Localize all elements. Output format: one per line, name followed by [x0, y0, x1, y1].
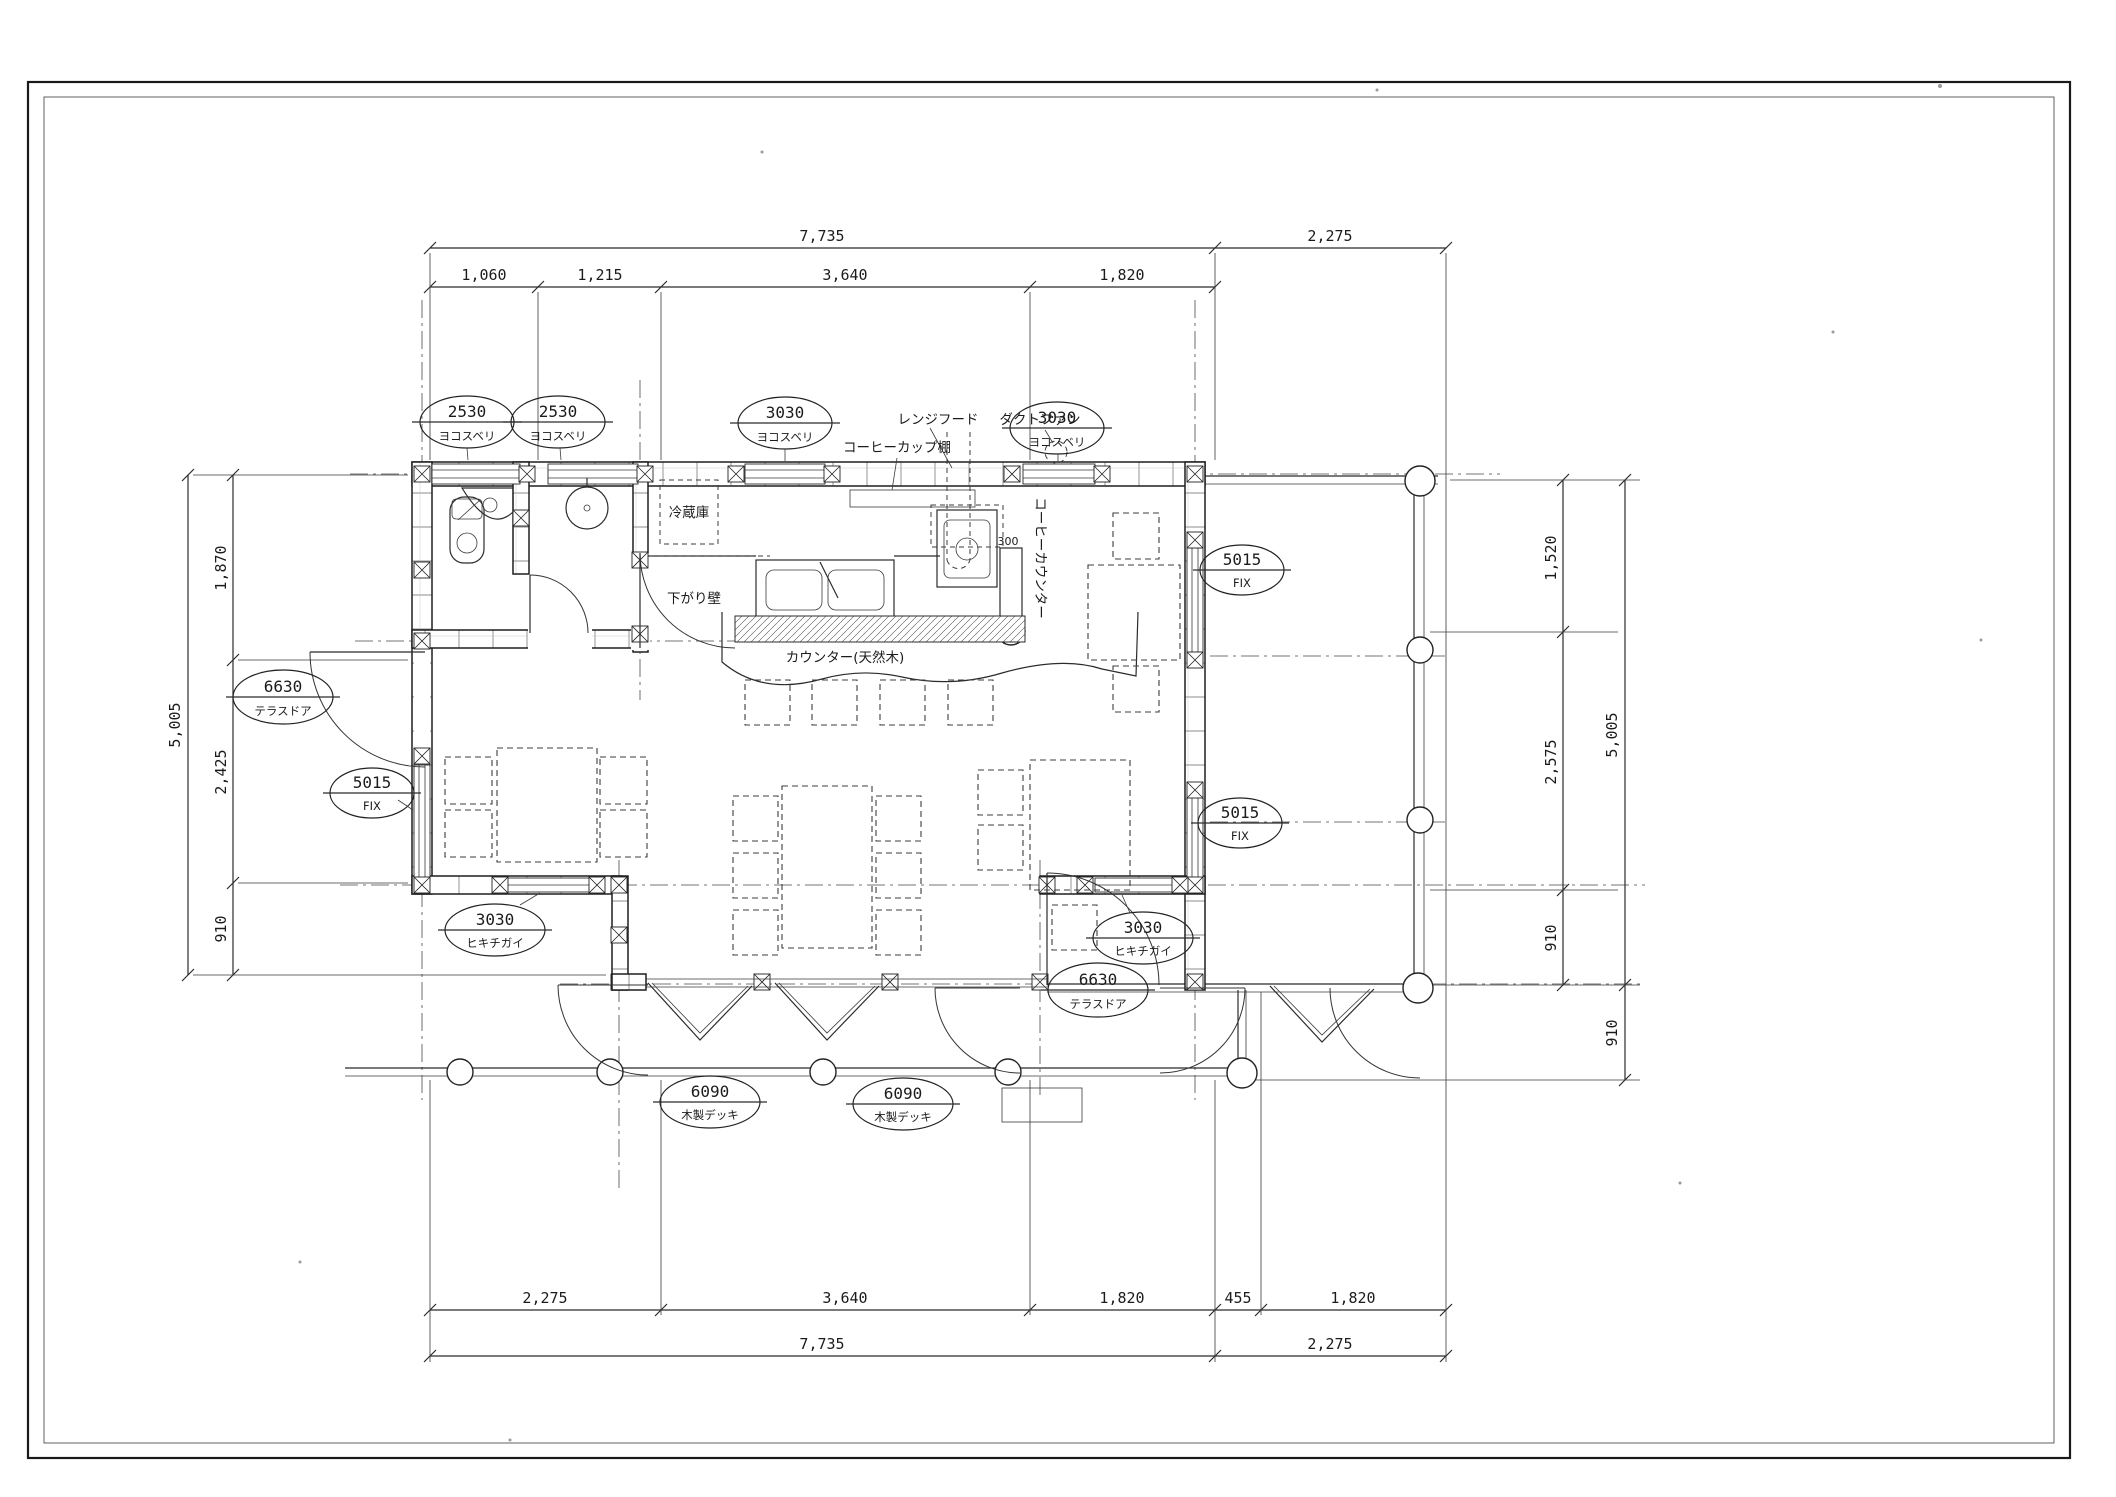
window-left-fix [414, 765, 430, 880]
dimension-right: 1,520 2,575 910 5,005 910 [1250, 474, 1640, 1086]
dim-bottom-seg5: 1,820 [1330, 1289, 1375, 1307]
label-duct-fan: ダクトファン [1000, 412, 1081, 428]
dim-right-seg1: 1,520 [1542, 535, 1560, 580]
callouts: 2530 ヨコスベリ 2530 ヨコスベリ 3030 ヨコスベリ 3030 ヨコ… [226, 396, 1291, 1130]
window-bottom-sliding-left [500, 878, 592, 892]
label-counter: カウンター(天然木) [786, 649, 905, 666]
svg-text:5015: 5015 [353, 773, 392, 792]
dim-top-overall: 7,735 [799, 227, 844, 245]
dimension-left: 5,005 1,870 2,425 910 [166, 469, 606, 981]
svg-text:6630: 6630 [264, 677, 303, 696]
kitchen-sink [756, 560, 894, 618]
dimension-bottom: 2,275 3,640 1,820 455 1,820 7,735 2,275 [424, 992, 1452, 1362]
window-right-fix-lower [1187, 795, 1203, 878]
label-coffee-cup-shelf: コーヒーカップ棚 [843, 440, 951, 456]
window-side-table [1088, 513, 1180, 712]
scan-noise [299, 84, 1983, 1442]
svg-text:5015: 5015 [1221, 803, 1260, 822]
svg-text:テラスドア: テラスドア [254, 704, 311, 718]
svg-text:テラスドア: テラスドア [1069, 997, 1126, 1011]
deck-step [1002, 1088, 1082, 1122]
callout-size: 2530 [448, 402, 487, 421]
dining-set-center [733, 786, 921, 955]
svg-text:ヒキチガイ: ヒキチガイ [466, 936, 524, 950]
dim-top-seg3: 3,640 [822, 266, 867, 284]
svg-text:6090: 6090 [691, 1082, 730, 1101]
callout-deck-left: 6090 木製デッキ [653, 1076, 767, 1128]
callout-type: ヨコスベリ [439, 429, 496, 443]
svg-text:3030: 3030 [476, 910, 515, 929]
label-dropped-wall: 下がり壁 [667, 591, 721, 607]
dim-top-seg2: 1,215 [577, 266, 622, 284]
label-refrigerator: 冷蔵庫 [669, 505, 710, 521]
callout-window-top-4: 3030 ヨコスベリ [1002, 402, 1112, 462]
dim-left-seg3: 910 [212, 915, 230, 942]
dim-bottom-seg3: 1,820 [1099, 1289, 1144, 1307]
svg-text:FIX: FIX [363, 799, 381, 813]
svg-text:5015: 5015 [1223, 550, 1262, 569]
corner-hand-basin [458, 488, 513, 520]
svg-text:ヨコスベリ: ヨコスベリ [1029, 435, 1086, 449]
dim-bottom-seg1: 2,275 [522, 1289, 567, 1307]
walls [412, 462, 1205, 990]
callout-deck-right: 6090 木製デッキ [846, 1078, 960, 1130]
svg-text:ヒキチガイ: ヒキチガイ [1114, 944, 1172, 958]
svg-text:FIX: FIX [1233, 576, 1251, 590]
dim-left-seg1: 1,870 [212, 545, 230, 590]
dining-set-right [978, 760, 1130, 950]
svg-text:木製デッキ: 木製デッキ [874, 1110, 932, 1124]
coffee-cup-shelf [850, 490, 975, 507]
dim-top-overall-right: 2,275 [1307, 227, 1352, 245]
dim-top-seg4: 1,820 [1099, 266, 1144, 284]
svg-text:3030: 3030 [766, 403, 805, 422]
toilet [450, 497, 484, 563]
svg-text:ヨコスベリ: ヨコスベリ [530, 429, 587, 443]
bar-counter [722, 612, 1138, 685]
wall-joints [414, 466, 1203, 990]
window-top-4 [1023, 464, 1095, 484]
bar-stools [745, 680, 993, 725]
callout-sliding-left: 3030 ヒキチガイ [438, 893, 552, 956]
window-top-1 [432, 464, 520, 484]
window-top-2 [548, 464, 638, 484]
dim-left-overall: 5,005 [166, 702, 184, 747]
deck-posts [447, 466, 1435, 1088]
dim-bottom-seg4: 455 [1224, 1289, 1251, 1307]
dim-bottom-seg2: 3,640 [822, 1289, 867, 1307]
dim-right-seg3: 910 [1542, 924, 1560, 951]
svg-text:木製デッキ: 木製デッキ [681, 1108, 739, 1122]
callout-terrace-door-left: 6630 テラスドア [226, 670, 340, 724]
floor-plan-drawing: 7,735 2,275 1,060 1,215 3,640 1,820 2,27… [0, 0, 2116, 1497]
dim-left-seg2: 2,425 [212, 749, 230, 794]
svg-text:3030: 3030 [1124, 918, 1163, 937]
callout-fix-right-upper: 5015 FIX [1193, 545, 1291, 595]
wc-door-swing [530, 575, 588, 633]
wood-deck [345, 466, 1438, 1122]
sheet-border [28, 82, 2070, 1458]
dim-bottom-overall-left: 7,735 [799, 1335, 844, 1353]
dim-top-seg1: 1,060 [461, 266, 506, 284]
windows [414, 464, 1203, 892]
label-counter-depth: 300 [998, 535, 1019, 548]
callout-terrace-door-bottom: 6630 テラスドア [1041, 963, 1155, 1017]
stove [937, 510, 997, 587]
callout-window-top-3: 3030 ヨコスベリ [730, 397, 840, 461]
window-right-fix-upper [1187, 548, 1203, 652]
svg-text:2530: 2530 [539, 402, 578, 421]
folding-doors [558, 873, 1420, 1078]
dim-bottom-overall-right: 2,275 [1307, 1335, 1352, 1353]
dining-set-left [445, 748, 647, 862]
dim-right-overall: 5,005 [1603, 712, 1621, 757]
callout-window-top-1: 2530 ヨコスベリ [412, 396, 522, 460]
callout-window-top-2: 2530 ヨコスベリ [503, 396, 613, 460]
svg-text:ヨコスベリ: ヨコスベリ [757, 430, 814, 444]
callout-sliding-right: 3030 ヒキチガイ [1086, 895, 1200, 964]
window-top-3 [745, 464, 825, 484]
callout-fix-left: 5015 FIX [323, 768, 421, 818]
scanned-floor-plan-sheet: 7,735 2,275 1,060 1,215 3,640 1,820 2,27… [0, 0, 2116, 1497]
label-coffee-counter: コーヒーカウンター [1032, 497, 1048, 619]
dim-right-seg2: 2,575 [1542, 739, 1560, 784]
svg-text:FIX: FIX [1231, 829, 1249, 843]
label-range-hood: レンジフード [898, 412, 979, 428]
svg-text:6630: 6630 [1079, 970, 1118, 989]
dim-right-deck-depth: 910 [1603, 1019, 1621, 1046]
svg-text:6090: 6090 [884, 1084, 923, 1103]
